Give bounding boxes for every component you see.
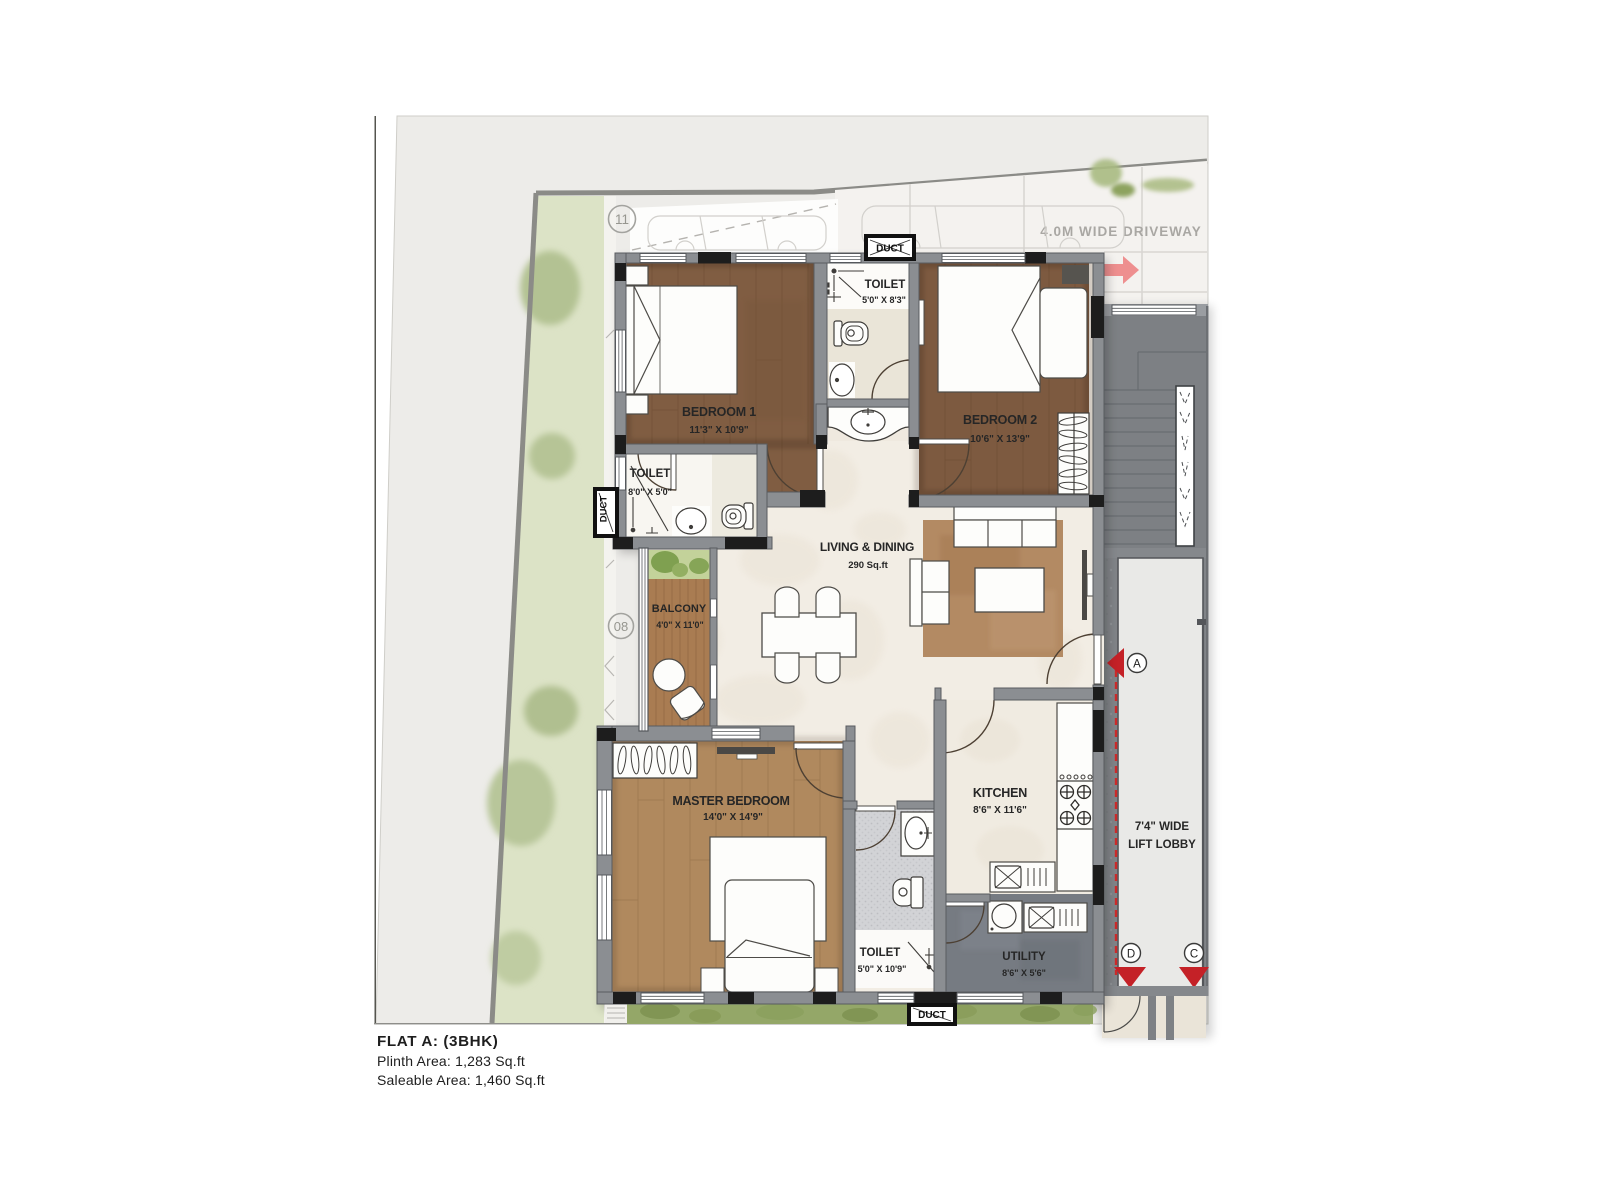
svg-text:TOILET: TOILET [860, 947, 901, 959]
svg-text:10'6" X 13'9": 10'6" X 13'9" [970, 434, 1030, 445]
svg-text:Plinth Area: 1,283 Sq.ft: Plinth Area: 1,283 Sq.ft [377, 1053, 525, 1069]
svg-text:8'0" X 5'0": 8'0" X 5'0" [628, 487, 672, 497]
svg-text:11: 11 [615, 212, 629, 227]
svg-text:BEDROOM 2: BEDROOM 2 [963, 413, 1037, 427]
svg-text:TOILET: TOILET [865, 279, 906, 291]
svg-text:D: D [1127, 949, 1135, 961]
svg-text:TOILET: TOILET [630, 468, 671, 480]
svg-text:Saleable Area: 1,460 Sq.ft: Saleable Area: 1,460 Sq.ft [377, 1072, 545, 1088]
svg-text:DUCT: DUCT [918, 1010, 946, 1021]
svg-text:5'0" X 10'9": 5'0" X 10'9" [858, 964, 907, 974]
svg-text:5'0" X 8'3": 5'0" X 8'3" [862, 295, 906, 305]
svg-text:UTILITY: UTILITY [1002, 951, 1046, 963]
svg-text:C: C [1190, 949, 1198, 961]
svg-text:8'6" X 11'6": 8'6" X 11'6" [973, 805, 1027, 816]
svg-text:4.0M WIDE DRIVEWAY: 4.0M WIDE DRIVEWAY [1040, 224, 1202, 239]
svg-text:LIFT LOBBY: LIFT LOBBY [1128, 839, 1196, 851]
svg-text:4'0" X 11'0": 4'0" X 11'0" [656, 620, 703, 630]
svg-text:BALCONY: BALCONY [652, 603, 707, 615]
svg-text:A: A [1133, 659, 1141, 671]
svg-text:DUCT: DUCT [599, 496, 610, 523]
svg-text:290 Sq.ft: 290 Sq.ft [848, 560, 888, 571]
svg-text:7'4" WIDE: 7'4" WIDE [1135, 821, 1190, 833]
svg-text:KITCHEN: KITCHEN [973, 786, 1027, 800]
svg-text:MASTER BEDROOM: MASTER BEDROOM [672, 794, 789, 808]
svg-text:DUCT: DUCT [876, 244, 904, 255]
svg-text:BEDROOM 1: BEDROOM 1 [682, 405, 756, 419]
svg-text:8'6" X 5'6": 8'6" X 5'6" [1002, 968, 1046, 978]
svg-text:FLAT A: (3BHK): FLAT A: (3BHK) [377, 1033, 498, 1050]
svg-text:11'3" X 10'9": 11'3" X 10'9" [689, 425, 749, 436]
svg-text:14'0" X 14'9": 14'0" X 14'9" [703, 812, 763, 823]
svg-text:LIVING & DINING: LIVING & DINING [820, 540, 914, 554]
svg-text:08: 08 [614, 619, 628, 634]
